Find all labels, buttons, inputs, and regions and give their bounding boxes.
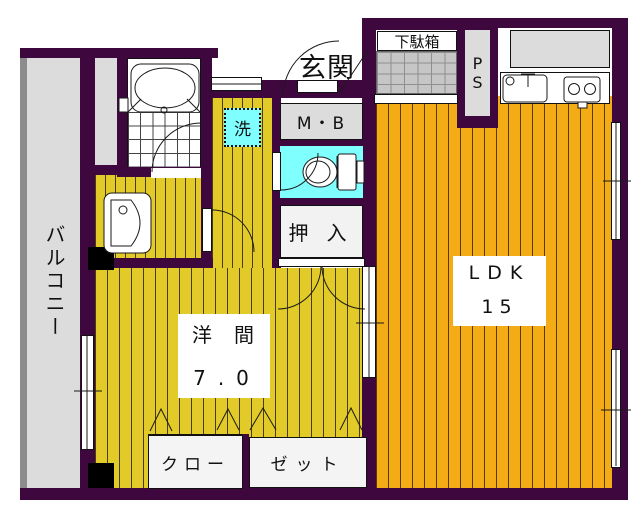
balcony-rail	[20, 58, 27, 488]
closet-left-box: クロー	[148, 434, 243, 489]
bathroom-tile-floor	[128, 112, 200, 167]
ldk-label-box: LDK 15	[453, 256, 546, 326]
ldk-window-upper	[611, 122, 621, 240]
storage-gray-room	[95, 58, 117, 165]
washroom-floor	[95, 173, 201, 258]
washer-label: 洗	[234, 115, 251, 140]
ldk-name: LDK	[453, 262, 546, 284]
floorplan: 下駄箱 PS M・B 押入 洗 クロー ゼット LDK 15 洋間 7.0 玄関…	[0, 0, 639, 511]
wall-bath-right	[201, 56, 212, 178]
western-room-name: 洋間	[178, 319, 270, 348]
closet-left-label: クロー	[161, 450, 230, 475]
wall-ps-left	[457, 28, 465, 128]
wall-ps-bottom	[457, 116, 498, 128]
washroom-door	[202, 208, 212, 252]
entrance-tile-floor	[376, 51, 457, 94]
oshiire-label: 押入	[279, 217, 365, 246]
wall-bottom	[20, 488, 628, 500]
wall-grayroom-bottom	[95, 165, 127, 175]
closet-right-box: ゼット	[249, 437, 367, 488]
pillar-bottom-left	[88, 463, 114, 488]
western-room-label-box: 洋間 7.0	[178, 314, 270, 398]
wall-toilet-oshiire	[280, 198, 363, 205]
bathroom-door-opening	[151, 168, 201, 178]
ldk-size: 15	[453, 296, 546, 318]
entrance-label: 玄関	[299, 46, 355, 85]
balcony-window	[81, 335, 94, 450]
wall-ps-right	[490, 28, 498, 128]
kitchen-counter	[500, 72, 610, 104]
sliding-door-western-ldk	[362, 266, 376, 378]
washroom-window	[211, 77, 262, 91]
shoe-cabinet-label: 下駄箱	[394, 31, 439, 52]
pillar-mid-left	[88, 247, 114, 270]
oshiire-closet: 押入	[280, 205, 363, 258]
balcony-label: バルコニー	[40, 224, 69, 339]
meter-box: M・B	[280, 103, 363, 140]
wall-bath-left	[117, 56, 127, 177]
kitchen-upper-cabinet	[510, 30, 610, 68]
western-room-size: 7.0	[178, 366, 270, 390]
closet-right-label: ゼット	[271, 450, 346, 475]
shoe-cabinet: 下駄箱	[377, 31, 457, 51]
pipe-space: PS	[465, 30, 490, 116]
toilet-room	[280, 146, 363, 198]
oshiire-doors	[278, 258, 365, 267]
pipe-space-label: PS	[471, 54, 485, 92]
entrance-step	[374, 94, 458, 104]
toilet-door	[272, 152, 281, 191]
washer-space: 洗	[224, 108, 261, 147]
meter-box-label: M・B	[297, 109, 346, 134]
ldk-window-lower	[611, 349, 621, 468]
